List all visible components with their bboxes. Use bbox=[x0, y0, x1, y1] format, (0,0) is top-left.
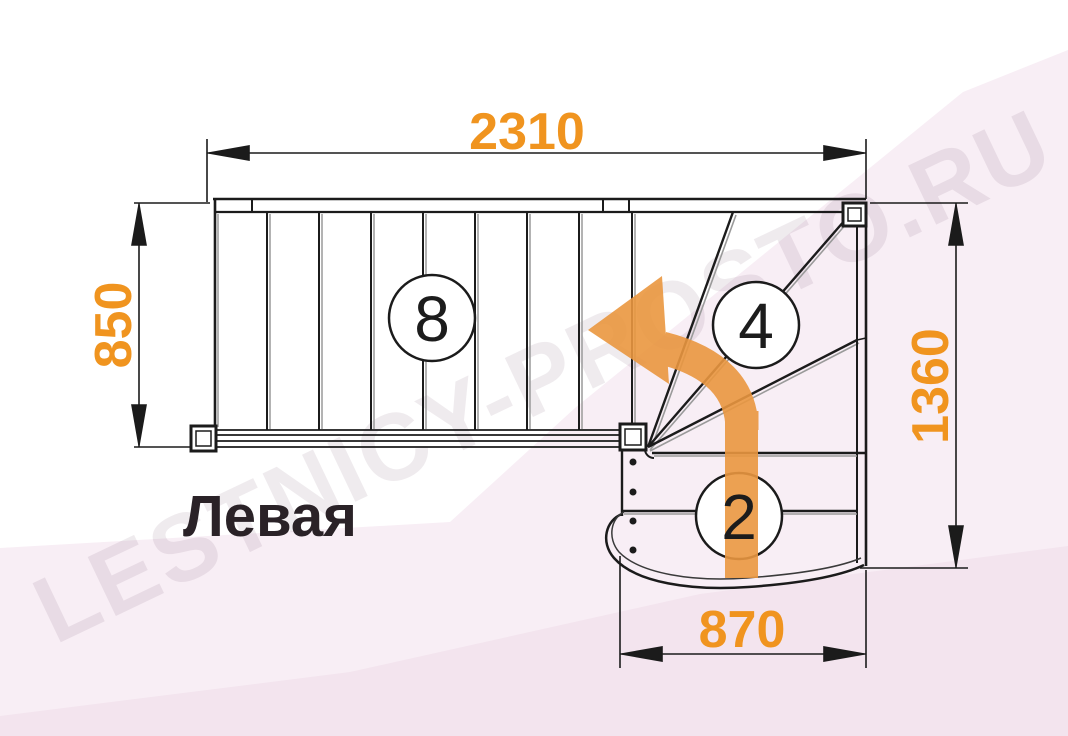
newel-post-corner bbox=[843, 203, 866, 226]
staircase-plan-screenshot: LESTNICY-PROSTO.RU bbox=[0, 0, 1068, 736]
plan-orientation-label: Левая bbox=[183, 484, 357, 549]
dim-label-total-length: 2310 bbox=[469, 103, 585, 161]
bottom-step-count: 2 bbox=[721, 481, 757, 553]
winder-count: 4 bbox=[738, 290, 774, 362]
dim-label-right-depth: 1360 bbox=[902, 328, 960, 444]
newel-post-left bbox=[191, 426, 216, 451]
dim-label-bottom-width: 870 bbox=[699, 601, 786, 659]
straight-flight-count: 8 bbox=[414, 283, 450, 355]
dim-label-flight-width: 850 bbox=[85, 282, 143, 369]
newel-post-center bbox=[620, 424, 646, 450]
staircase-plan-diagram: LESTNICY-PROSTO.RU bbox=[0, 0, 1068, 736]
